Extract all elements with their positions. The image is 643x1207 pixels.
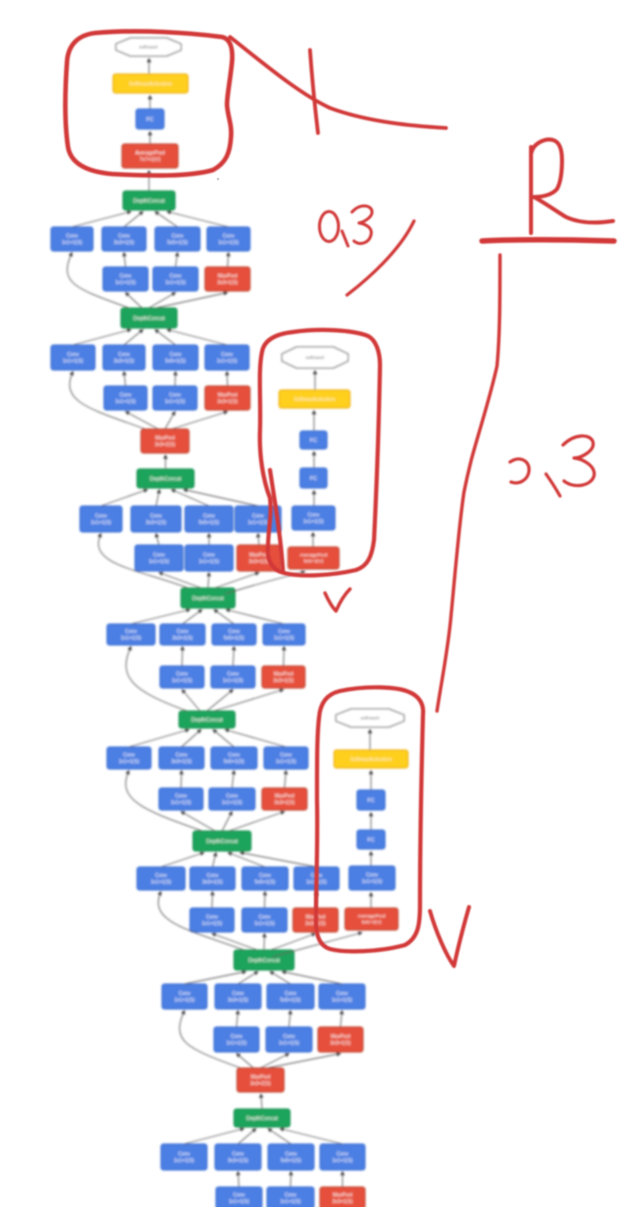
svg-text:AveragePool: AveragePool [358, 914, 385, 920]
svg-text:Conv: Conv [169, 393, 181, 399]
svg-text:Conv: Conv [170, 352, 182, 358]
svg-text:MaxPool: MaxPool [251, 1075, 270, 1081]
svg-text:3x3+1(S): 3x3+1(S) [146, 520, 167, 526]
svg-text:Conv: Conv [155, 873, 167, 879]
svg-text:Conv: Conv [285, 1193, 297, 1199]
svg-text:1x1+1(S): 1x1+1(S) [115, 280, 136, 286]
svg-text:3x3+1(S): 3x3+1(S) [274, 800, 295, 806]
svg-text:Conv: Conv [285, 1152, 297, 1158]
svg-text:3x3+1(S): 3x3+1(S) [228, 997, 249, 1003]
svg-text:3x3+1(S): 3x3+1(S) [217, 280, 238, 286]
svg-text:Conv: Conv [278, 629, 290, 635]
svg-text:MaxPool: MaxPool [275, 794, 294, 800]
svg-text:5x5+1(S): 5x5+1(S) [199, 520, 220, 526]
svg-text:Conv: Conv [178, 1152, 190, 1158]
svg-text:1x1+1(S): 1x1+1(S) [280, 1199, 301, 1205]
svg-text:Conv: Conv [285, 991, 297, 997]
svg-text:Conv: Conv [232, 991, 244, 997]
svg-text:1x1+1(S): 1x1+1(S) [91, 520, 112, 526]
svg-text:3x3+1(S): 3x3+1(S) [172, 635, 193, 641]
svg-text:Conv: Conv [153, 553, 165, 559]
svg-text:1x1+1(S): 1x1+1(S) [332, 1158, 353, 1164]
svg-text:FC: FC [310, 476, 317, 482]
svg-text:Conv: Conv [366, 873, 378, 879]
svg-text:5x5+1(S): 5x5+1(S) [281, 1158, 302, 1164]
svg-text:FC: FC [367, 837, 374, 843]
svg-text:Conv: Conv [232, 1152, 244, 1158]
svg-text:Conv: Conv [66, 234, 78, 240]
svg-text:Conv: Conv [203, 514, 215, 520]
svg-text:AveragePool: AveragePool [300, 553, 327, 559]
svg-text:3x3+1(S): 3x3+1(S) [171, 759, 192, 765]
svg-text:5x5+1(S): 5x5+1(S) [224, 759, 245, 765]
svg-text:Conv: Conv [280, 753, 292, 759]
svg-text:MaxPool: MaxPool [218, 274, 237, 280]
svg-text:3x3+1(S): 3x3+1(S) [217, 399, 238, 405]
svg-text:DepthConcat: DepthConcat [246, 1116, 278, 1122]
svg-text:DepthConcat: DepthConcat [206, 839, 238, 845]
svg-text:1x1+1(S): 1x1+1(S) [217, 358, 238, 364]
svg-text:MaxPool: MaxPool [331, 1034, 350, 1040]
svg-text:Conv: Conv [228, 629, 240, 635]
svg-text:Conv: Conv [233, 1193, 245, 1199]
svg-text:MaxPool: MaxPool [274, 672, 293, 678]
svg-text:Conv: Conv [207, 873, 219, 879]
svg-text:MaxPool: MaxPool [218, 393, 237, 399]
svg-text:Conv: Conv [203, 553, 215, 559]
svg-text:softmax0: softmax0 [306, 355, 325, 360]
svg-text:3x3+1(S): 3x3+1(S) [228, 1158, 249, 1164]
svg-text:Conv: Conv [118, 352, 130, 358]
svg-text:3x3+1(S): 3x3+1(S) [330, 1040, 351, 1046]
svg-text:1x1+1(S): 1x1+1(S) [362, 879, 383, 885]
svg-text:1x1+1(S): 1x1+1(S) [121, 635, 142, 641]
svg-text:1x1+1(S): 1x1+1(S) [279, 1040, 300, 1046]
svg-text:1x1+1(S): 1x1+1(S) [171, 800, 192, 806]
svg-text:Conv: Conv [259, 915, 271, 921]
svg-text:Conv: Conv [337, 1152, 349, 1158]
svg-text:1x1+1(S): 1x1+1(S) [222, 800, 243, 806]
svg-text:1x1+1(S): 1x1+1(S) [174, 1158, 195, 1164]
svg-text:Conv: Conv [227, 672, 239, 678]
svg-text:FC: FC [310, 438, 317, 444]
svg-text:1x1+1(S): 1x1+1(S) [63, 358, 84, 364]
svg-text:3x3+1(S): 3x3+1(S) [273, 678, 294, 684]
svg-text:1x1+1(S): 1x1+1(S) [149, 559, 170, 565]
svg-text:3x3+2(S): 3x3+2(S) [250, 1081, 271, 1087]
svg-text:MaxPool: MaxPool [155, 436, 174, 442]
svg-text:1x1+1(S): 1x1+1(S) [303, 519, 324, 525]
svg-text:1x1+1(S): 1x1+1(S) [174, 997, 195, 1003]
svg-text:1x1+1(S): 1x1+1(S) [248, 520, 269, 526]
svg-text:1x1+1(S): 1x1+1(S) [218, 240, 239, 246]
svg-text:DepthConcat: DepthConcat [133, 316, 165, 322]
svg-text:Conv: Conv [67, 352, 79, 358]
svg-text:softmax0: softmax0 [361, 716, 380, 721]
svg-text:DepthConcat: DepthConcat [192, 596, 224, 602]
svg-text:Conv: Conv [176, 753, 188, 759]
svg-text:Conv: Conv [259, 873, 271, 879]
svg-text:Conv: Conv [308, 513, 320, 519]
svg-text:Conv: Conv [228, 753, 240, 759]
svg-text:1x1+1(S): 1x1+1(S) [165, 399, 186, 405]
svg-text:3x3+1(S): 3x3+1(S) [202, 879, 223, 885]
svg-text:Conv: Conv [123, 753, 135, 759]
svg-text:SoftmaxActivation: SoftmaxActivation [350, 757, 392, 763]
svg-text:5x5+1(S): 5x5+1(S) [165, 358, 186, 364]
svg-text:SoftmaxActivation: SoftmaxActivation [129, 81, 172, 87]
svg-text:3x3+1(S): 3x3+1(S) [114, 240, 135, 246]
svg-text:SoftmaxActivation: SoftmaxActivation [294, 397, 336, 403]
svg-text:Conv: Conv [252, 514, 264, 520]
svg-text:Conv: Conv [175, 794, 187, 800]
svg-text:5x5+1(S): 5x5+1(S) [224, 635, 245, 641]
svg-text:1x1+1(S): 1x1+1(S) [223, 678, 244, 684]
svg-text:softmax0: softmax0 [139, 45, 158, 50]
svg-text:5x5+1(S): 5x5+1(S) [167, 240, 188, 246]
svg-text:1x1+1(S): 1x1+1(S) [62, 240, 83, 246]
svg-text:DepthConcat: DepthConcat [133, 198, 165, 204]
svg-text:MaxPool: MaxPool [333, 1193, 352, 1199]
svg-text:Conv: Conv [172, 234, 184, 240]
svg-text:1x1+1(S): 1x1+1(S) [172, 678, 193, 684]
svg-text:Conv: Conv [336, 991, 348, 997]
svg-text:1x1+1(S): 1x1+1(S) [165, 280, 186, 286]
svg-text:3x3+2(S): 3x3+2(S) [155, 442, 176, 448]
svg-text:Conv: Conv [150, 514, 162, 520]
svg-text:Conv: Conv [206, 915, 218, 921]
svg-text:FC: FC [146, 117, 153, 123]
svg-text:Conv: Conv [120, 393, 132, 399]
svg-text:1x1+1(S): 1x1+1(S) [229, 1199, 250, 1205]
svg-text:5x5+3(V): 5x5+3(V) [304, 559, 324, 565]
svg-text:Conv: Conv [223, 234, 235, 240]
svg-text:1x1+1(S): 1x1+1(S) [274, 635, 295, 641]
svg-text:1x1+1(S): 1x1+1(S) [332, 997, 353, 1003]
svg-text:Conv: Conv [95, 514, 107, 520]
svg-text:DepthConcat: DepthConcat [150, 476, 182, 482]
svg-text:FC: FC [367, 798, 374, 804]
svg-text:Conv: Conv [221, 352, 233, 358]
svg-text:1x1+1(S): 1x1+1(S) [202, 921, 223, 927]
svg-text:Conv: Conv [231, 1034, 243, 1040]
svg-text:3x3+1(S): 3x3+1(S) [249, 559, 270, 565]
svg-text:Conv: Conv [170, 274, 182, 280]
svg-text:Conv: Conv [283, 1034, 295, 1040]
svg-text:Conv: Conv [226, 794, 238, 800]
svg-text:1x1+1(S): 1x1+1(S) [226, 1040, 247, 1046]
svg-text:AveragePool: AveragePool [135, 151, 165, 157]
svg-text:Conv: Conv [179, 991, 191, 997]
svg-text:1x1+1(S): 1x1+1(S) [151, 879, 172, 885]
svg-text:DepthConcat: DepthConcat [191, 717, 223, 723]
svg-text:MaxPool: MaxPool [249, 553, 268, 559]
svg-text:1x1+1(S): 1x1+1(S) [254, 921, 275, 927]
svg-text:DepthConcat: DepthConcat [248, 958, 280, 964]
svg-text:5x5+1(S): 5x5+1(S) [280, 997, 301, 1003]
svg-text:1x1+1(S): 1x1+1(S) [115, 399, 136, 405]
svg-text:Conv: Conv [118, 234, 130, 240]
svg-text:Conv: Conv [176, 672, 188, 678]
svg-text:3x3+1(S): 3x3+1(S) [332, 1199, 353, 1205]
svg-text:7x7+1(V): 7x7+1(V) [139, 157, 160, 163]
svg-text:1x1+1(S): 1x1+1(S) [119, 759, 140, 765]
svg-text:Conv: Conv [125, 629, 137, 635]
svg-text:Conv: Conv [120, 274, 132, 280]
svg-text:Conv: Conv [177, 629, 189, 635]
svg-text:1x1+1(S): 1x1+1(S) [276, 759, 297, 765]
svg-text:5x5+1(S): 5x5+1(S) [255, 879, 276, 885]
svg-text:1x1+1(S): 1x1+1(S) [199, 559, 220, 565]
svg-text:3x3+1(S): 3x3+1(S) [114, 358, 135, 364]
svg-text:5x5+3(V): 5x5+3(V) [362, 920, 382, 926]
